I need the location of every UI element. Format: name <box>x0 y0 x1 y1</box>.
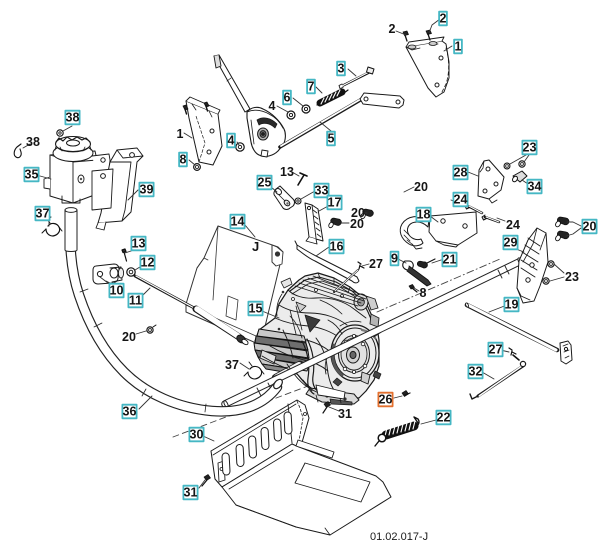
svg-text:11: 11 <box>129 293 142 307</box>
svg-text:20: 20 <box>414 180 428 194</box>
svg-text:30: 30 <box>190 427 204 441</box>
svg-text:25: 25 <box>258 175 272 189</box>
svg-text:12: 12 <box>141 255 155 269</box>
svg-text:17: 17 <box>328 195 342 209</box>
svg-text:15: 15 <box>249 301 263 315</box>
svg-text:4: 4 <box>269 99 276 113</box>
svg-text:16: 16 <box>330 239 344 253</box>
svg-text:14: 14 <box>231 214 245 228</box>
svg-text:19: 19 <box>505 297 519 311</box>
svg-text:27: 27 <box>489 342 503 356</box>
svg-text:38: 38 <box>26 135 40 149</box>
svg-text:26: 26 <box>379 392 393 406</box>
svg-text:24: 24 <box>506 218 520 232</box>
svg-text:20: 20 <box>122 330 136 344</box>
svg-text:01.02.017-J: 01.02.017-J <box>370 531 428 543</box>
svg-text:37: 37 <box>36 206 50 220</box>
svg-text:7: 7 <box>308 79 315 93</box>
svg-text:22: 22 <box>437 410 451 424</box>
svg-text:13: 13 <box>280 165 294 179</box>
svg-text:J: J <box>252 239 259 254</box>
svg-text:20: 20 <box>583 219 597 233</box>
svg-text:34: 34 <box>528 179 542 193</box>
svg-text:2: 2 <box>440 11 447 25</box>
svg-text:18: 18 <box>417 207 431 221</box>
svg-text:2: 2 <box>389 22 396 36</box>
svg-text:6: 6 <box>284 90 291 104</box>
svg-text:4: 4 <box>228 133 235 147</box>
svg-text:31: 31 <box>184 485 198 499</box>
svg-text:23: 23 <box>523 140 537 154</box>
svg-text:9: 9 <box>391 251 398 265</box>
svg-text:20: 20 <box>350 217 364 231</box>
svg-text:3: 3 <box>338 61 345 75</box>
svg-text:23: 23 <box>565 270 579 284</box>
svg-text:8: 8 <box>180 152 187 166</box>
svg-text:27: 27 <box>369 257 383 271</box>
svg-text:1: 1 <box>177 127 184 141</box>
svg-text:1: 1 <box>455 39 462 53</box>
svg-text:13: 13 <box>132 236 146 250</box>
svg-text:36: 36 <box>123 404 137 418</box>
svg-text:31: 31 <box>338 407 352 421</box>
svg-text:29: 29 <box>504 235 518 249</box>
svg-text:8: 8 <box>420 286 427 300</box>
svg-text:5: 5 <box>328 131 335 145</box>
svg-text:38: 38 <box>66 110 80 124</box>
svg-text:37: 37 <box>225 358 239 372</box>
svg-text:21: 21 <box>443 252 457 266</box>
svg-text:24: 24 <box>454 192 468 206</box>
svg-text:35: 35 <box>25 167 39 181</box>
svg-text:32: 32 <box>469 364 483 378</box>
svg-text:33: 33 <box>315 183 329 197</box>
svg-text:10: 10 <box>110 283 124 297</box>
svg-text:28: 28 <box>454 165 468 179</box>
svg-text:39: 39 <box>140 182 154 196</box>
